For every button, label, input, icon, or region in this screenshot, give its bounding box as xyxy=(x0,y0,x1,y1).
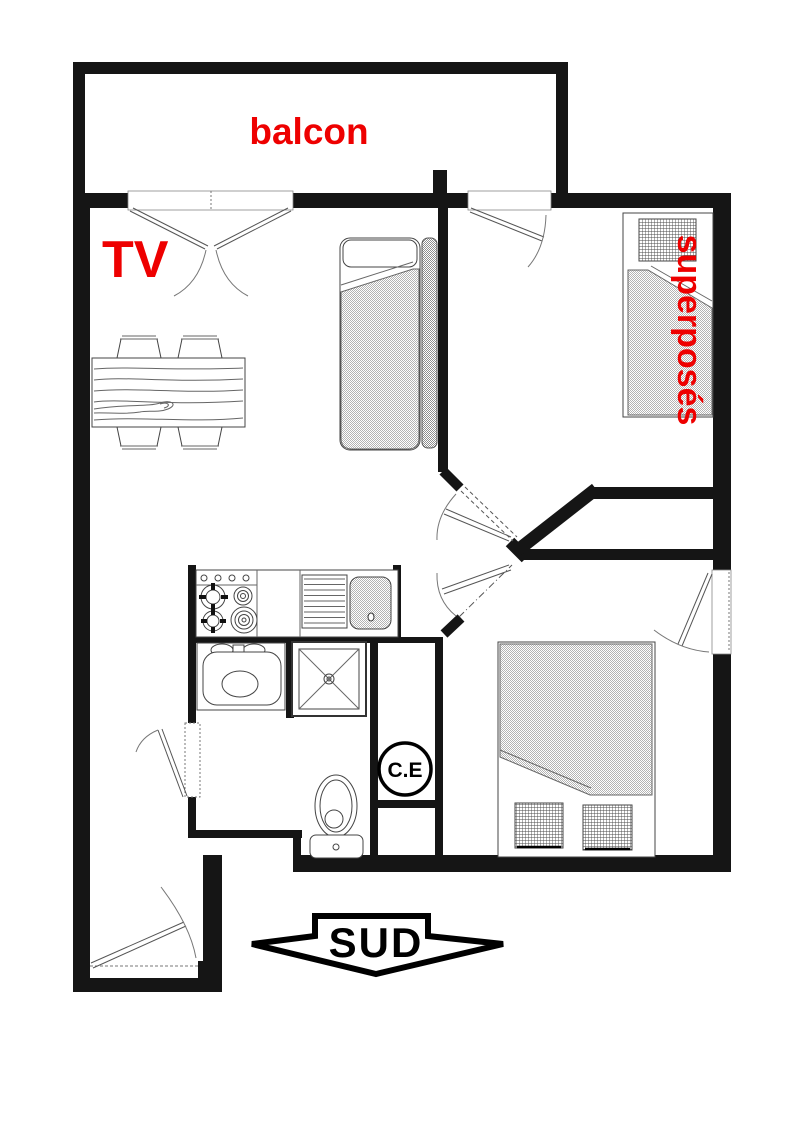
tv-label: TV xyxy=(102,231,169,289)
dining-table xyxy=(92,358,245,427)
shower xyxy=(292,642,366,716)
bunk-room-window xyxy=(468,191,551,210)
bunk-beds-label: superposés xyxy=(670,235,708,426)
washbasin xyxy=(197,643,285,710)
water-heater: C.E xyxy=(379,743,431,795)
floor-plan: C.E balcon TV superposés SUD xyxy=(0,0,802,1134)
french-door-opening xyxy=(128,191,293,210)
double-bed xyxy=(498,642,655,857)
bedroom-window xyxy=(712,570,731,654)
south-label: SUD xyxy=(329,919,424,966)
water-heater-label: C.E xyxy=(387,759,422,782)
sofa-bed xyxy=(340,238,437,450)
balcony-label: balcon xyxy=(249,111,368,152)
kitchenette xyxy=(196,570,398,637)
kitchen-sink xyxy=(350,577,391,629)
